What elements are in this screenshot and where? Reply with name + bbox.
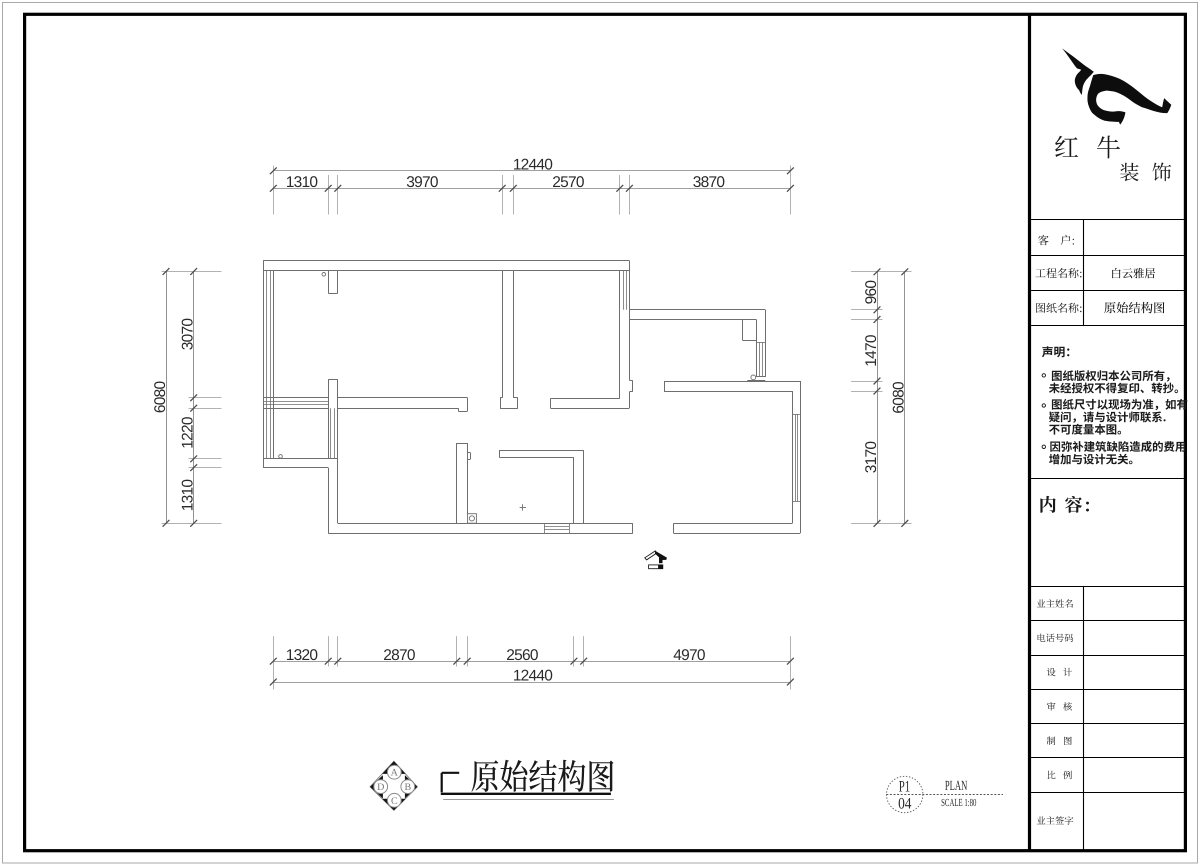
svg-text:SCALE 1:80: SCALE 1:80 — [941, 797, 976, 809]
svg-text:04: 04 — [898, 796, 911, 813]
svg-text:P1: P1 — [899, 779, 910, 796]
svg-text:960: 960 — [863, 280, 880, 305]
svg-text:B: B — [404, 782, 411, 793]
svg-text:4970: 4970 — [673, 647, 706, 664]
svg-text:6080: 6080 — [891, 381, 908, 414]
svg-text:3870: 3870 — [693, 174, 726, 191]
svg-text:3970: 3970 — [406, 174, 439, 191]
svg-text:2870: 2870 — [383, 647, 416, 664]
svg-text:2560: 2560 — [506, 647, 539, 664]
svg-text:PLAN: PLAN — [945, 779, 967, 794]
svg-text:D: D — [377, 782, 384, 793]
svg-text:3070: 3070 — [180, 318, 197, 351]
svg-text:1310: 1310 — [286, 174, 319, 191]
svg-text:2570: 2570 — [552, 174, 585, 191]
svg-text:12440: 12440 — [513, 156, 553, 173]
svg-text:A: A — [391, 768, 399, 779]
svg-text:1220: 1220 — [180, 416, 197, 449]
svg-text:1470: 1470 — [863, 334, 880, 367]
svg-text:1320: 1320 — [286, 647, 319, 664]
svg-text:C: C — [391, 796, 398, 807]
svg-text:6080: 6080 — [152, 381, 169, 414]
svg-text:12440: 12440 — [513, 668, 553, 685]
svg-text:1310: 1310 — [180, 479, 197, 512]
svg-text:3170: 3170 — [863, 441, 880, 474]
